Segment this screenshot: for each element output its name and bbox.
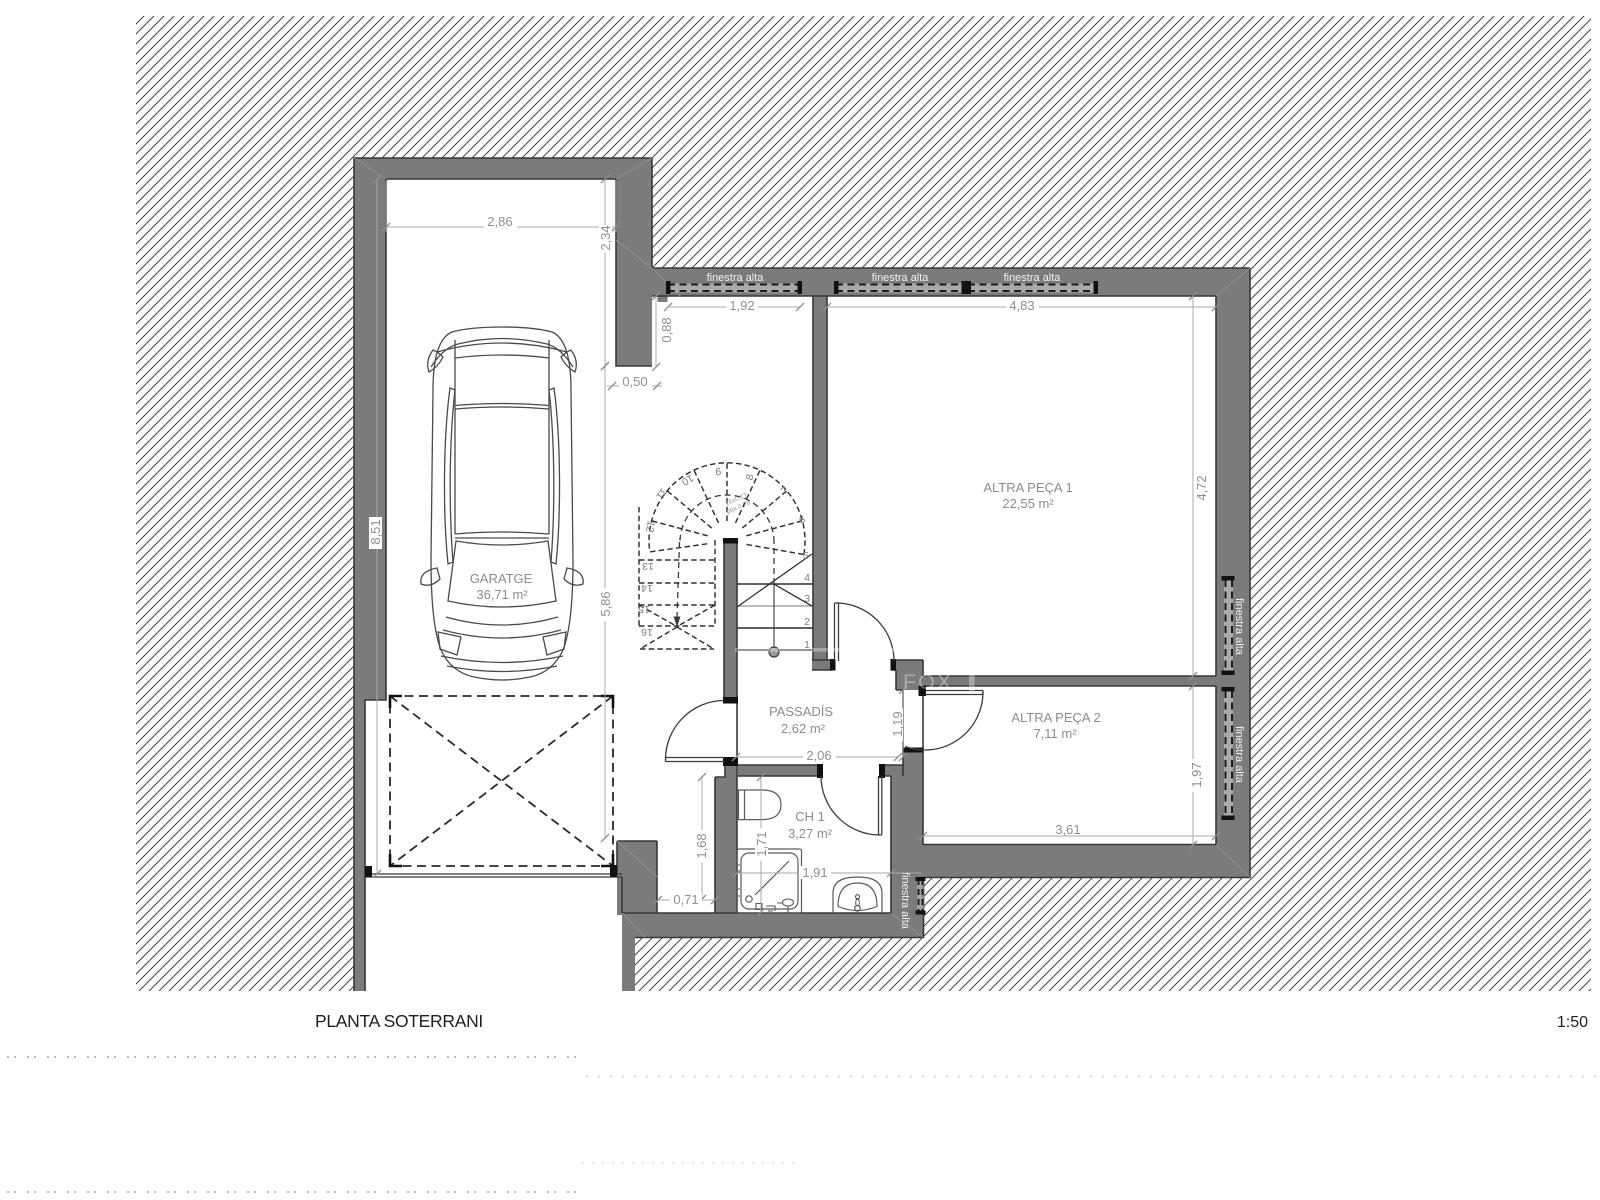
svg-text:finestra alta: finestra alta xyxy=(1004,272,1062,284)
svg-text:9: 9 xyxy=(715,465,722,477)
svg-text:1,19: 1,19 xyxy=(890,711,905,736)
svg-text:5,86: 5,86 xyxy=(598,591,613,616)
svg-text:7,11 m²: 7,11 m² xyxy=(1033,726,1077,741)
svg-text:PLANTA SOTERRANI: PLANTA SOTERRANI xyxy=(315,1011,483,1031)
svg-text:GARATGE: GARATGE xyxy=(470,571,533,586)
svg-text:finestra alta: finestra alta xyxy=(1233,726,1245,784)
svg-text:ALTRA PEÇA 1: ALTRA PEÇA 1 xyxy=(983,480,1072,495)
svg-text:1,91: 1,91 xyxy=(802,865,827,880)
svg-text:PASSADÍS: PASSADÍS xyxy=(769,704,833,719)
svg-text:2,34: 2,34 xyxy=(598,225,613,250)
svg-text:2: 2 xyxy=(804,616,810,628)
svg-text:8,51: 8,51 xyxy=(368,519,383,544)
svg-text:36,71 m²: 36,71 m² xyxy=(476,587,528,602)
svg-text:finestra alta: finestra alta xyxy=(1233,598,1245,656)
svg-text:CH 1: CH 1 xyxy=(795,809,825,824)
svg-text:3,27 m²: 3,27 m² xyxy=(788,826,833,841)
svg-text:1,92: 1,92 xyxy=(729,298,754,313)
svg-text:0,71: 0,71 xyxy=(673,892,698,907)
svg-text:1,97: 1,97 xyxy=(1189,762,1204,787)
svg-text:2,06: 2,06 xyxy=(806,748,831,763)
svg-text:4,72: 4,72 xyxy=(1194,475,1209,500)
svg-text:16: 16 xyxy=(641,626,653,638)
svg-text:4,83: 4,83 xyxy=(1009,298,1034,313)
svg-text:1,71: 1,71 xyxy=(754,831,769,856)
svg-text:2,62 m²: 2,62 m² xyxy=(781,721,826,736)
svg-text:finestra alta: finestra alta xyxy=(872,272,930,284)
svg-text:3,61: 3,61 xyxy=(1055,822,1080,837)
svg-text:2,86: 2,86 xyxy=(487,214,512,229)
svg-text:13: 13 xyxy=(642,560,654,572)
svg-text:14: 14 xyxy=(641,582,653,594)
svg-text:0,88: 0,88 xyxy=(659,317,674,342)
svg-text:finestra alta: finestra alta xyxy=(707,272,765,284)
svg-text:4: 4 xyxy=(804,572,810,584)
svg-text:1:50: 1:50 xyxy=(1557,1014,1588,1031)
svg-text:12: 12 xyxy=(643,520,657,534)
svg-text:0,50: 0,50 xyxy=(622,374,647,389)
svg-text:ALTRA PEÇA 2: ALTRA PEÇA 2 xyxy=(1011,710,1100,725)
svg-text:FOX: FOX xyxy=(903,670,953,694)
svg-text:5: 5 xyxy=(803,550,809,562)
svg-text:22,55 m²: 22,55 m² xyxy=(1002,496,1054,511)
svg-text:3: 3 xyxy=(804,593,810,605)
svg-text:1,68: 1,68 xyxy=(694,833,709,858)
svg-text:finestra alta: finestra alta xyxy=(899,872,911,930)
svg-text:15: 15 xyxy=(638,603,650,615)
